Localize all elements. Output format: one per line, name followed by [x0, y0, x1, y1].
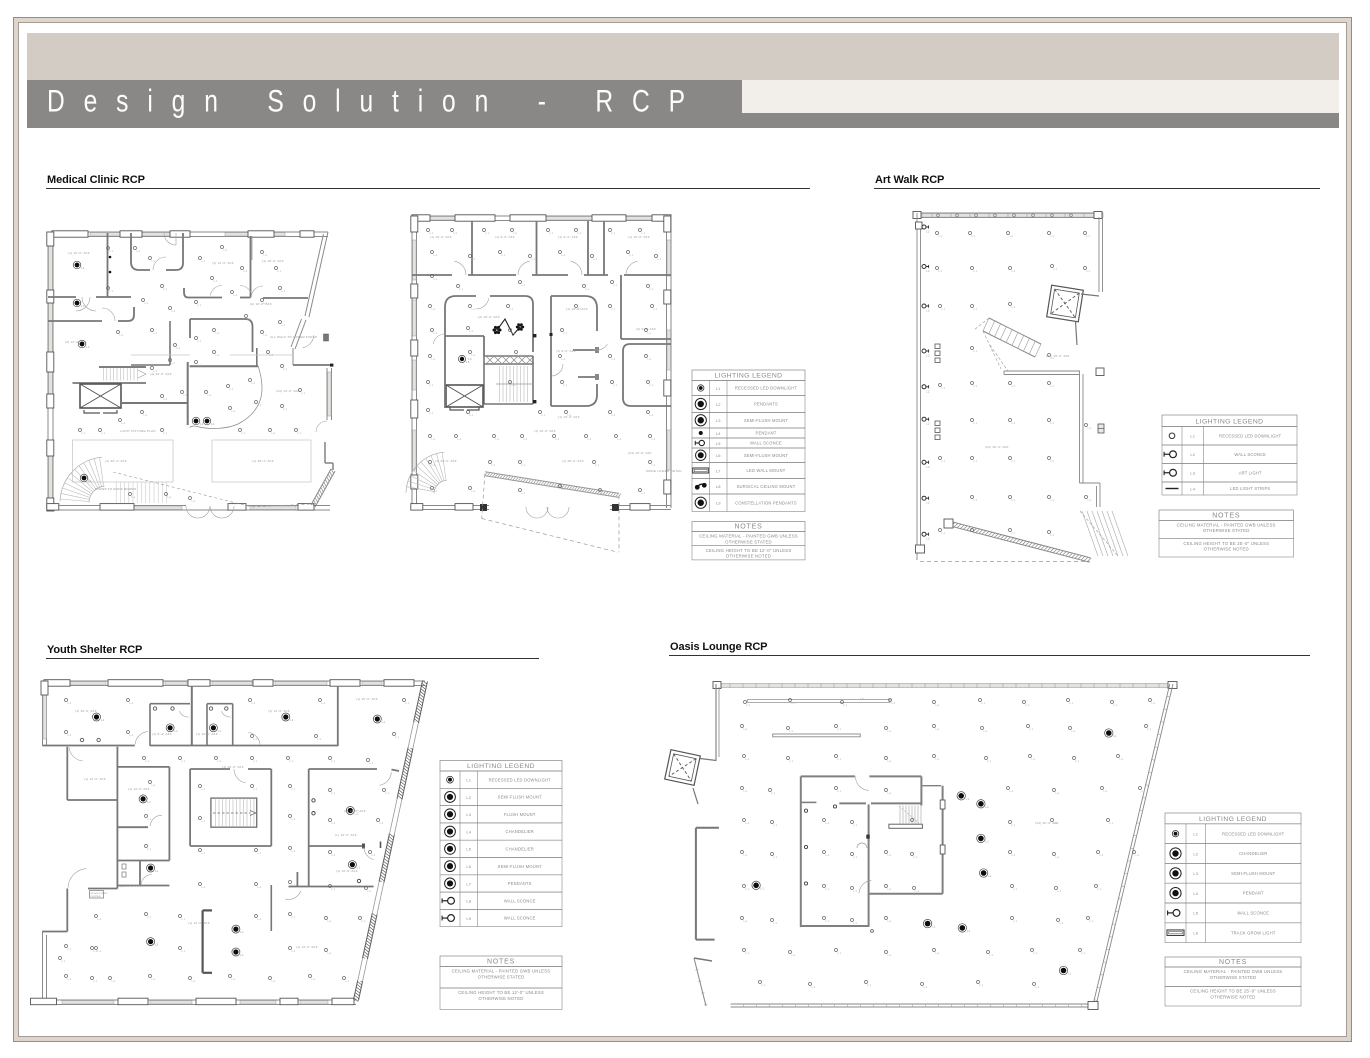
svg-text:L1: L1 [980, 983, 984, 987]
svg-text:L1: L1 [988, 759, 992, 763]
svg-text:L1: L1 [1012, 459, 1016, 463]
svg-text:L1: L1 [556, 437, 560, 441]
svg-text:L2: L2 [926, 389, 930, 393]
svg-text:L1: L1 [826, 919, 830, 923]
svg-text:L1: L1 [985, 839, 989, 843]
svg-text:L1: L1 [716, 386, 721, 391]
svg-text:L1: L1 [588, 437, 592, 441]
svg-text:OTHERWISE NOTED: OTHERWISE NOTED [726, 554, 771, 559]
svg-text:(L) 10'-0" AFF: (L) 10'-0" AFF [335, 833, 357, 837]
svg-text:L1: L1 [1098, 887, 1102, 891]
svg-text:CHANDELIER: CHANDELIER [506, 829, 534, 834]
svg-text:L1: L1 [1012, 531, 1016, 535]
svg-text:STAIRS TO ROOF ROOMS: STAIRS TO ROOF ROOMS [95, 487, 136, 491]
svg-text:CEILING HEIGHT TO BE 25'-0" UN: CEILING HEIGHT TO BE 25'-0" UNLESS [1190, 989, 1276, 994]
svg-text:L1: L1 [122, 421, 126, 425]
svg-text:WALL SCONCE: WALL SCONCE [504, 916, 536, 921]
svg-text:L1: L1 [916, 889, 920, 893]
svg-text:L1: L1 [386, 791, 390, 795]
svg-text:L1: L1 [264, 301, 268, 305]
svg-text:WALL SCONCE: WALL SCONCE [1237, 911, 1269, 916]
svg-text:WALL SCONCE: WALL SCONCE [1234, 452, 1266, 457]
svg-text:L1: L1 [1026, 703, 1030, 707]
svg-text:L1: L1 [270, 353, 274, 357]
svg-text:(24) 10'-0" AFF: (24) 10'-0" AFF [628, 451, 652, 455]
svg-text:CEILING MATERIAL - PAINTED GWB: CEILING MATERIAL - PAINTED GWB UNLESS [1177, 523, 1276, 528]
svg-text:L1: L1 [1082, 951, 1086, 955]
svg-text:L1: L1 [232, 409, 236, 413]
svg-text:L2: L2 [926, 501, 930, 505]
svg-text:L8: L8 [716, 484, 721, 489]
svg-text:L5: L5 [466, 847, 471, 852]
svg-text:L1: L1 [258, 403, 262, 407]
svg-text:L1: L1 [888, 759, 892, 763]
svg-text:L1: L1 [746, 951, 750, 955]
svg-text:L1: L1 [254, 759, 258, 763]
svg-text:L1: L1 [272, 979, 276, 983]
svg-text:L1: L1 [216, 331, 220, 335]
svg-text:L1: L1 [102, 431, 106, 435]
svg-text:L1: L1 [612, 307, 616, 311]
svg-text:L1: L1 [1056, 791, 1060, 795]
svg-text:L1: L1 [652, 463, 656, 467]
svg-text:L1: L1 [792, 953, 796, 957]
svg-text:L1: L1 [936, 703, 940, 707]
svg-text:SEMI-FLUSH MOUNT: SEMI-FLUSH MOUNT [498, 795, 542, 800]
svg-text:L1: L1 [939, 234, 943, 238]
svg-text:L1: L1 [1110, 821, 1114, 825]
svg-text:L1: L1 [514, 231, 518, 235]
svg-text:L1: L1 [332, 887, 336, 891]
svg-text:L1: L1 [1012, 823, 1016, 827]
svg-text:L5: L5 [716, 441, 721, 446]
svg-text:L1: L1 [612, 413, 616, 417]
svg-text:L1: L1 [130, 733, 134, 737]
svg-text:L1: L1 [370, 761, 374, 765]
svg-text:L1: L1 [1076, 759, 1080, 763]
svg-text:(1) 10'-0" AFF: (1) 10'-0" AFF [534, 429, 556, 433]
svg-text:L1: L1 [524, 437, 528, 441]
svg-text:(1) 10'-0" AFF: (1) 10'-0" AFF [120, 884, 142, 888]
svg-text:L1: L1 [472, 489, 476, 493]
svg-text:L1: L1 [198, 363, 202, 367]
svg-text:L1: L1 [1051, 234, 1055, 238]
svg-text:L1: L1 [1113, 734, 1117, 738]
svg-text:L1: L1 [298, 431, 302, 435]
svg-text:L1: L1 [182, 759, 186, 763]
svg-text:L1: L1 [312, 977, 316, 981]
svg-text:L2: L2 [926, 465, 930, 469]
svg-text:L1: L1 [747, 703, 751, 707]
svg-text:L1: L1 [1014, 887, 1018, 891]
svg-text:L1: L1 [86, 345, 90, 349]
svg-text:L1: L1 [278, 269, 282, 273]
svg-text:L1: L1 [1136, 853, 1140, 857]
svg-text:L1: L1 [492, 463, 496, 467]
svg-text:L1: L1 [244, 269, 248, 273]
svg-text:PENDANT: PENDANT [756, 431, 777, 436]
svg-text:L1: L1 [328, 951, 332, 955]
svg-text:CHANDELIER: CHANDELIER [1239, 851, 1267, 856]
svg-text:L1: L1 [744, 919, 748, 923]
svg-text:(1) 10'-0" AFF: (1) 10'-0" AFF [336, 869, 358, 873]
svg-text:L1: L1 [147, 800, 151, 804]
svg-text:L1: L1 [985, 805, 989, 809]
svg-text:L1: L1 [362, 919, 366, 923]
svg-text:L1: L1 [234, 293, 238, 297]
svg-text:L1: L1 [602, 491, 606, 495]
svg-text:L1: L1 [762, 983, 766, 987]
svg-text:L1: L1 [939, 269, 943, 273]
svg-text:(2) 10'-0" AFF: (2) 10'-0" AFF [478, 315, 500, 319]
svg-text:L1: L1 [432, 463, 436, 467]
svg-text:ALL WALK TO UPPER FINISH: ALL WALK TO UPPER FINISH [270, 335, 317, 339]
svg-text:L1: L1 [1148, 727, 1152, 731]
svg-text:L1: L1 [110, 249, 114, 253]
svg-text:L1: L1 [618, 437, 622, 441]
svg-text:L1: L1 [322, 701, 326, 705]
svg-text:L1: L1 [746, 757, 750, 761]
svg-text:L2: L2 [1190, 452, 1195, 457]
svg-text:CEILING HEIGHT TO BE 12'-0" UN: CEILING HEIGHT TO BE 12'-0" UNLESS [706, 548, 792, 553]
svg-text:L2: L2 [926, 537, 930, 541]
svg-text:L1: L1 [746, 821, 750, 825]
svg-text:L1: L1 [924, 985, 928, 989]
svg-text:LIGHTING LEGEND: LIGHTING LEGEND [467, 763, 535, 770]
svg-text:L1: L1 [486, 231, 490, 235]
svg-text:L1: L1 [650, 383, 654, 387]
svg-text:L1: L1 [974, 384, 978, 388]
svg-text:L1: L1 [292, 949, 296, 953]
svg-text:L1: L1 [1068, 972, 1072, 976]
svg-text:LIGHTING LEGEND: LIGHTING LEGEND [1199, 816, 1267, 823]
svg-text:L1: L1 [282, 289, 286, 293]
svg-text:L1: L1 [650, 413, 654, 417]
svg-text:(1) 12'-0" AFF: (1) 12'-0" AFF [84, 777, 106, 781]
svg-text:L1: L1 [460, 287, 464, 291]
svg-text:SEMI-FLUSH MOUNT: SEMI-FLUSH MOUNT [498, 864, 542, 869]
svg-text:L1: L1 [94, 979, 98, 983]
svg-text:L9: L9 [716, 501, 721, 506]
svg-text:L1: L1 [1114, 703, 1118, 707]
svg-text:L1: L1 [614, 283, 618, 287]
svg-text:RECESSED LED DOWNLIGHT: RECESSED LED DOWNLIGHT [1219, 433, 1281, 438]
svg-text:L1: L1 [144, 413, 148, 417]
svg-text:SURGICAL CEILING MOUNT: SURGICAL CEILING MOUNT [737, 484, 796, 489]
svg-text:L1: L1 [290, 718, 294, 722]
svg-text:L1: L1 [790, 729, 794, 733]
svg-text:L1: L1 [172, 361, 176, 365]
svg-text:L1: L1 [430, 383, 434, 387]
svg-text:L1: L1 [974, 459, 978, 463]
svg-text:L1: L1 [1142, 789, 1146, 793]
svg-text:L1: L1 [472, 257, 476, 261]
svg-text:L1: L1 [966, 797, 970, 801]
svg-text:(1) 10'-0" AFF: (1) 10'-0" AFF [628, 235, 650, 239]
svg-text:L1: L1 [502, 253, 506, 257]
svg-text:OTHERWISE STATED: OTHERWISE STATED [725, 539, 772, 544]
svg-text:L1: L1 [990, 953, 994, 957]
svg-text:L1: L1 [542, 413, 546, 417]
svg-text:L1: L1 [68, 733, 72, 737]
svg-text:L1: L1 [282, 323, 286, 327]
svg-text:L1: L1 [164, 397, 168, 401]
svg-text:(1) 12'-0" AFF: (1) 12'-0" AFF [188, 921, 210, 925]
svg-text:L1: L1 [564, 383, 568, 387]
svg-text:(24) 30'-0" AFF: (24) 30'-0" AFF [985, 445, 1009, 449]
svg-text:OTHERWISE STATED: OTHERWISE STATED [478, 974, 525, 979]
svg-text:L2: L2 [926, 354, 930, 358]
svg-text:SEMI-FLUSH MOUNT: SEMI-FLUSH MOUNT [744, 453, 788, 458]
svg-text:L1: L1 [146, 759, 150, 763]
svg-text:L1: L1 [790, 759, 794, 763]
svg-text:(1) 10'-0" AFF: (1) 10'-0" AFF [262, 259, 284, 263]
svg-text:(1) 12'-0" AFF: (1) 12'-0" AFF [296, 945, 318, 949]
svg-text:L1: L1 [182, 917, 186, 921]
svg-text:L1: L1 [112, 979, 116, 983]
svg-text:CENTER: CENTER [91, 896, 101, 898]
svg-text:(1) 38'-4" AFF: (1) 38'-4" AFF [252, 459, 274, 463]
svg-text:L1: L1 [472, 307, 476, 311]
svg-text:L1: L1 [148, 847, 152, 851]
svg-text:(L) 12'-0" AFF: (L) 12'-0" AFF [344, 809, 366, 813]
svg-text:L1: L1 [110, 289, 114, 293]
svg-text:L1: L1 [648, 357, 652, 361]
svg-text:L1: L1 [211, 422, 215, 426]
svg-text:SEMI-FLUSH MOUNT: SEMI-FLUSH MOUNT [1231, 871, 1275, 876]
svg-text:L1: L1 [292, 915, 296, 919]
svg-text:L1: L1 [182, 949, 186, 953]
svg-text:L1: L1 [568, 413, 572, 417]
svg-text:L1: L1 [1051, 384, 1055, 388]
svg-text:ART LIGHT: ART LIGHT [1239, 470, 1262, 475]
svg-text:L1: L1 [81, 304, 85, 308]
svg-text:L1: L1 [1012, 421, 1016, 425]
svg-text:L1: L1 [594, 257, 598, 261]
svg-text:RECESSED LED DOWNLIGHT: RECESSED LED DOWNLIGHT [489, 777, 551, 782]
svg-text:L1: L1 [224, 248, 228, 252]
svg-text:FLUSH MOUNT: FLUSH MOUNT [504, 812, 536, 817]
svg-text:L4: L4 [466, 829, 471, 834]
svg-text:L1: L1 [1030, 727, 1034, 731]
svg-text:L1: L1 [1051, 498, 1055, 502]
svg-text:L1: L1 [202, 819, 206, 823]
svg-text:L1: L1 [470, 413, 474, 417]
svg-text:L2: L2 [466, 795, 471, 800]
svg-text:L1: L1 [120, 333, 124, 337]
svg-text:L1: L1 [1100, 853, 1104, 857]
svg-text:L1: L1 [510, 307, 514, 311]
svg-text:L1: L1 [214, 279, 218, 283]
svg-text:L1: L1 [532, 257, 536, 261]
svg-text:L4: L4 [716, 431, 721, 436]
svg-text:CEILING MATERIAL - PAINTED GWB: CEILING MATERIAL - PAINTED GWB UNLESS [452, 969, 551, 974]
svg-text:L1: L1 [838, 789, 842, 793]
svg-text:L1: L1 [458, 437, 462, 441]
svg-text:L1: L1 [254, 787, 258, 791]
svg-text:L2: L2 [1193, 851, 1198, 856]
svg-text:L1: L1 [650, 287, 654, 291]
svg-text:L1: L1 [202, 885, 206, 889]
svg-text:L1: L1 [1032, 757, 1036, 761]
svg-text:L1: L1 [1070, 701, 1074, 705]
svg-text:OTHERWISE STATED: OTHERWISE STATED [1210, 975, 1257, 980]
svg-text:L1: L1 [984, 729, 988, 733]
svg-text:L8: L8 [466, 899, 471, 904]
svg-text:L1: L1 [284, 407, 288, 411]
svg-text:L1: L1 [68, 977, 72, 981]
svg-text:L1: L1 [154, 331, 158, 335]
svg-text:L1: L1 [192, 499, 196, 503]
svg-text:L1: L1 [942, 531, 946, 535]
svg-text:L1: L1 [68, 947, 72, 951]
svg-text:L3: L3 [1190, 471, 1195, 476]
svg-text:L1: L1 [88, 479, 92, 483]
svg-text:L1: L1 [1056, 855, 1060, 859]
svg-text:L1: L1 [888, 919, 892, 923]
svg-text:L1: L1 [562, 487, 566, 491]
svg-text:L1: L1 [130, 701, 134, 705]
svg-text:L1: L1 [434, 331, 438, 335]
svg-text:L1: L1 [202, 787, 206, 791]
svg-text:L1: L1 [372, 853, 376, 857]
svg-text:L1: L1 [382, 720, 386, 724]
svg-text:L1: L1 [81, 266, 85, 270]
svg-text:(1) 10'-0" AFF: (1) 10'-0" AFF [196, 732, 218, 736]
svg-text:L4: L4 [1193, 891, 1198, 896]
svg-text:L1: L1 [202, 259, 206, 263]
svg-text:L1: L1 [1010, 234, 1014, 238]
svg-text:L1: L1 [988, 874, 992, 878]
svg-text:(1) 10'-0" AFF: (1) 10'-0" AFF [430, 235, 452, 239]
svg-text:L1: L1 [967, 929, 971, 933]
svg-text:L1: L1 [838, 951, 842, 955]
svg-text:L1: L1 [854, 921, 858, 925]
svg-text:L1: L1 [406, 701, 410, 705]
svg-text:(1) 12'-0" AFF: (1) 12'-0" AFF [268, 709, 290, 713]
svg-text:(24) 16'-0" AFF: (24) 16'-0" AFF [1046, 354, 1070, 358]
svg-text:L1: L1 [216, 353, 220, 357]
svg-text:L1: L1 [1087, 269, 1091, 273]
svg-text:L1: L1 [198, 339, 202, 343]
svg-text:NOTES: NOTES [487, 959, 515, 966]
svg-text:NOTES: NOTES [1212, 512, 1240, 519]
svg-text:(1) 36'-4" AFF: (1) 36'-4" AFF [105, 459, 127, 463]
svg-text:L1: L1 [1060, 921, 1064, 925]
svg-text:WALL SCONCE: WALL SCONCE [750, 441, 782, 446]
svg-text:L1: L1 [522, 463, 526, 467]
svg-text:(1) 10'-6" AFF: (1) 10'-6" AFF [75, 709, 97, 713]
svg-text:L1: L1 [232, 977, 236, 981]
svg-text:L1: L1 [434, 277, 438, 281]
svg-text:CHANDELIER: CHANDELIER [506, 846, 534, 851]
svg-text:L1: L1 [854, 889, 858, 893]
svg-text:L1: L1 [152, 977, 156, 981]
svg-text:L2: L2 [926, 422, 930, 426]
svg-text:L1: L1 [332, 853, 336, 857]
svg-text:L1: L1 [854, 823, 858, 827]
svg-text:L1: L1 [1012, 498, 1016, 502]
svg-text:L1: L1 [430, 231, 434, 235]
svg-text:L5: L5 [1193, 911, 1198, 916]
svg-text:L1: L1 [1090, 919, 1094, 923]
svg-text:L1: L1 [888, 953, 892, 957]
svg-text:L1: L1 [82, 431, 86, 435]
svg-text:SEMI-FLUSH MOUNT: SEMI-FLUSH MOUNT [744, 418, 788, 423]
svg-text:L1: L1 [1014, 919, 1018, 923]
svg-text:L1: L1 [1088, 498, 1092, 502]
svg-text:L1: L1 [774, 921, 778, 925]
svg-text:L1: L1 [562, 357, 566, 361]
svg-text:LIGHT FIXTURE PLAN: LIGHT FIXTURE PLAN [120, 429, 156, 433]
svg-text:L1: L1 [642, 231, 646, 235]
svg-text:(1) 9'-0" AFF: (1) 9'-0" AFF [152, 732, 172, 736]
svg-text:L1: L1 [332, 791, 336, 795]
svg-text:L1: L1 [430, 411, 434, 415]
svg-text:L1: L1 [1054, 267, 1058, 271]
svg-text:(1) 9'-0" AFF: (1) 9'-0" AFF [495, 235, 515, 239]
svg-text:L1: L1 [248, 317, 252, 321]
svg-text:L1: L1 [318, 737, 322, 741]
svg-text:L1: L1 [258, 917, 262, 921]
svg-text:L1: L1 [132, 495, 136, 499]
svg-text:L1: L1 [761, 886, 765, 890]
svg-text:(1) 9'-0" AFF: (1) 9'-0" AFF [558, 235, 578, 239]
svg-text:L1: L1 [432, 437, 436, 441]
svg-text:MORE LOWER DETAIL: MORE LOWER DETAIL [646, 469, 682, 473]
svg-text:L1: L1 [774, 855, 778, 859]
svg-text:L6: L6 [1193, 931, 1198, 936]
svg-text:L1: L1 [562, 253, 566, 257]
svg-text:L1: L1 [612, 357, 616, 361]
svg-text:PENDANTS: PENDANTS [508, 881, 532, 886]
svg-text:CEILING MATERIAL - PAINTED GWB: CEILING MATERIAL - PAINTED GWB UNLESS [699, 534, 798, 539]
svg-text:L1: L1 [1051, 421, 1055, 425]
svg-text:L1: L1 [838, 727, 842, 731]
svg-text:L1: L1 [258, 851, 262, 855]
svg-text:L6: L6 [716, 453, 721, 458]
svg-text:L1: L1 [145, 301, 149, 305]
svg-text:L1: L1 [454, 231, 458, 235]
svg-text:CONSTELLATION PENDANTS: CONSTELLATION PENDANTS [735, 500, 797, 505]
svg-text:L1: L1 [888, 853, 892, 857]
svg-text:RECESSED LED DOWNLIGHT: RECESSED LED DOWNLIGHT [1222, 831, 1284, 836]
svg-text:CEILING HEIGHT TO BE 25'-0" UN: CEILING HEIGHT TO BE 25'-0" UNLESS [1183, 541, 1269, 546]
svg-text:L1: L1 [68, 701, 72, 705]
svg-text:L1: L1 [1036, 985, 1040, 989]
svg-text:L1: L1 [432, 307, 436, 311]
svg-text:L1: L1 [564, 331, 568, 335]
svg-text:L3: L3 [1193, 871, 1198, 876]
svg-text:L1: L1 [332, 821, 336, 825]
svg-text:L1: L1 [192, 979, 196, 983]
svg-text:(1) 12'-0" AFF: (1) 12'-0" AFF [212, 261, 234, 265]
svg-text:L6: L6 [466, 864, 471, 869]
svg-text:(1) 10'-0" AFF: (1) 10'-0" AFF [222, 765, 244, 769]
svg-text:L1: L1 [1152, 701, 1156, 705]
svg-text:L1: L1 [974, 421, 978, 425]
svg-text:L1: L1 [888, 729, 892, 733]
svg-text:L1: L1 [1012, 269, 1016, 273]
svg-text:L7: L7 [716, 468, 721, 473]
svg-text:L1: L1 [202, 851, 206, 855]
svg-text:L1: L1 [1012, 305, 1016, 309]
svg-text:L1: L1 [292, 787, 296, 791]
svg-text:L1: L1 [892, 701, 896, 705]
svg-text:CEILING MATERIAL - PAINTED GWB: CEILING MATERIAL - PAINTED GWB UNLESS [1184, 969, 1283, 974]
svg-text:L1: L1 [242, 431, 246, 435]
svg-text:L9: L9 [466, 916, 471, 921]
